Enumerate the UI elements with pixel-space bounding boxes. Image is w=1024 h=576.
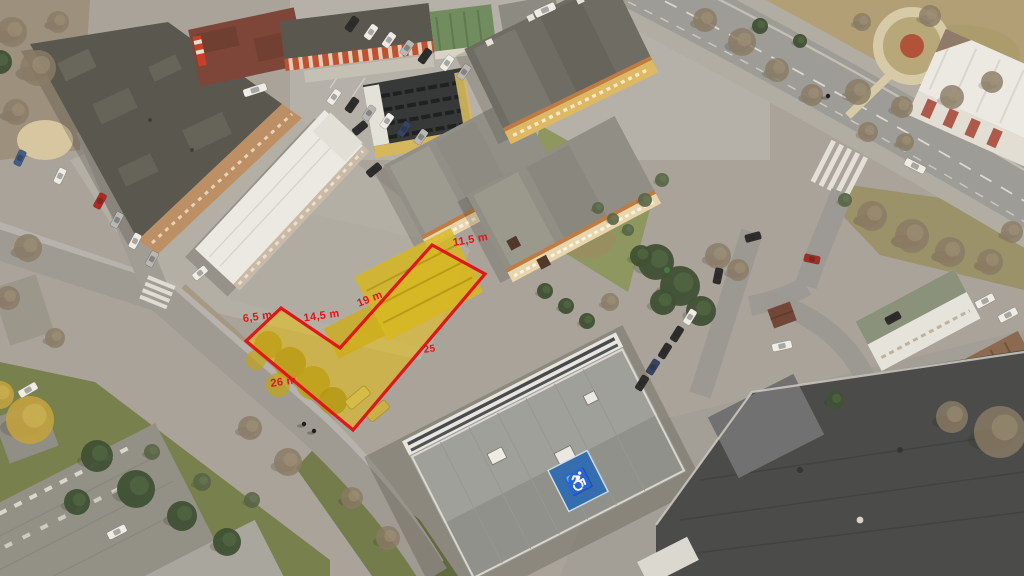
photo-tone-overlay	[0, 0, 1024, 576]
screenshot-root: ♿	[0, 0, 1024, 576]
aerial-photo: ♿	[0, 0, 1024, 576]
